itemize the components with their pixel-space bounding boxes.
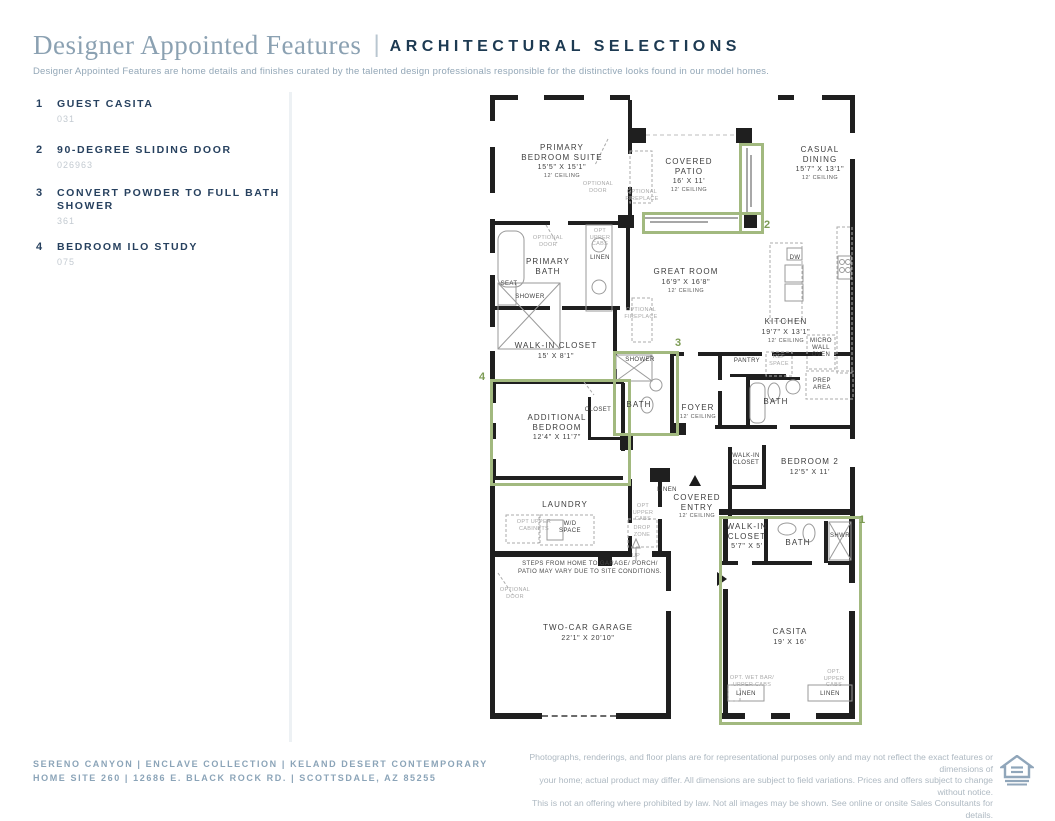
feature-item: 3CONVERT POWDER TO FULL BATH SHOWER361 [36,187,281,226]
label-shower-bath3: SHOWER [625,357,654,364]
label-ref-space: REFSPACE [769,354,789,367]
label-shower-primary: SHOWER [515,294,544,301]
page-description: Designer Appointed Features are home det… [33,66,769,77]
room-covered-patio: COVEREDPATIO16' X 11'12' CEILING [665,157,712,194]
feature-code: 361 [57,216,281,226]
room-casita: CASITA19' X 16' [773,627,808,647]
label-optional-fireplace-gr: OPTIONALFIREPLACE [624,307,657,320]
label-prep-area: PREPAREA [813,378,831,392]
room-covered-entry: COVEREDENTRY12' CEILING [673,493,720,520]
label-pantry: PANTRY [734,358,760,365]
feature-box-2-vertical [739,143,764,234]
label-opt-upper-cabinets: OPT UPPERCABINETS [517,519,551,532]
room-casual-dining: CASUALDINING15'7" X 13'1"12' CEILING [796,145,845,182]
feature-code: 031 [57,114,154,124]
label-seat: SEAT [501,281,518,288]
title-separator: | [373,31,379,58]
footer-left: SERENO CANYON | ENCLAVE COLLECTION | KEL… [33,757,488,785]
room-garage: TWO-CAR GARAGE22'1" X 20'10" [543,623,633,643]
label-linen-casita-1: LINEN [736,691,756,698]
feature-title: GUEST CASITA [57,98,154,111]
room-bedroom-2: BEDROOM 212'5" X 11' [781,457,839,477]
feature-title: CONVERT POWDER TO FULL BATH SHOWER [57,187,281,213]
room-casita-bath: BATH [785,538,810,548]
label-linen-entry: LINEN [657,487,677,494]
room-bedroom2-closet: WALK-INCLOSET [732,453,760,467]
room-bath-2: BATH [763,397,788,407]
disclaimer-line: This is not an offering where prohibited… [523,798,993,821]
brochure-page: { "header": { "title": "Designer Appoint… [0,0,1055,815]
disclaimer-line: Photographs, renderings, and floor plans… [523,752,993,775]
room-additional-bedroom: ADDITIONALBEDROOM12'4" X 11'7" [527,413,586,442]
label-optional-door-patio: OPTIONALDOOR [583,181,613,194]
feature-code: 075 [57,257,198,267]
feature-number: 4 [36,241,57,267]
label-optional-fireplace-patio: OPTIONALFIREPLACE [625,189,658,202]
room-primary-bath: PRIMARYBATH [526,257,570,276]
feature-code: 026963 [57,160,232,170]
room-bath-3: BATH [626,400,651,410]
label-drop-zone: DROPZONE [633,525,650,538]
label-opt-upper-cabs-entry: OPTUPPERCABS [633,503,653,523]
floor-plan: 2341 PRIMARYBEDROOM SUITE15'5" X 15'1"12… [490,95,860,730]
feature-title: BEDROOM ILO STUDY [57,241,198,254]
label-linen-bath: LINEN [590,255,610,262]
feature-marker-number: 3 [675,337,681,349]
label-shwr-casita: SHWR [830,533,850,540]
footer-community: SERENO CANYON | ENCLAVE COLLECTION | KEL… [33,757,488,771]
feature-number: 1 [36,98,57,124]
label-optional-door-bath: OPTIONALDOOR [533,235,563,248]
feature-marker-number: 4 [479,371,485,383]
label-optional-door-garage: OPTIONALDOOR [500,587,530,600]
label-opt-upper-cabs-casita: OPT.UPPERCABS [824,669,844,689]
page-subtitle-heading: ARCHITECTURAL SELECTIONS [390,38,741,55]
room-casita-closet: WALK-INCLOSET5'7" X 5' [727,522,768,551]
room-primary-bedroom-suite: PRIMARYBEDROOM SUITE15'5" X 15'1"12' CEI… [521,143,602,180]
room-great-room: GREAT ROOM16'9" X 16'8"12' CEILING [654,267,719,295]
footer-address: HOME SITE 260 | 12686 E. BLACK ROCK RD. … [33,771,488,785]
label-opt-wet-bar: OPT. WET BAR/UPPER CABS [730,675,774,688]
room-kitchen: KITCHEN19'7" X 13'1"12' CEILING [762,317,811,345]
page-title: Designer Appointed Features [33,30,361,60]
equal-housing-opportunity-icon [1000,755,1034,789]
footer-disclaimer: Photographs, renderings, and floor plans… [523,752,993,821]
label-up: UP [632,553,640,560]
room-walk-in-closet: WALK-IN CLOSET15' X 8'1" [515,341,598,361]
room-laundry: LAUNDRY [542,500,588,510]
feature-marker-number: 2 [764,219,770,231]
room-foyer: FOYER12' CEILING [680,403,716,421]
disclaimer-line: your home; actual product may differ. Al… [523,775,993,798]
feature-item: 4BEDROOM ILO STUDY075 [36,241,198,267]
feature-number: 3 [36,187,57,226]
feature-marker-number: 1 [859,514,865,526]
vertical-divider [289,92,292,742]
feature-item: 290-DEGREE SLIDING DOOR026963 [36,144,232,170]
label-micro-wall-oven: MICROWALLOVEN [810,338,832,359]
feature-title: 90-DEGREE SLIDING DOOR [57,144,232,157]
label-steps-note: STEPS FROM HOME TO GARAGE/ PORCH/PATIO M… [518,560,662,576]
page-header: Designer Appointed Features|ARCHITECTURA… [33,30,741,61]
feature-number: 2 [36,144,57,170]
label-opt-upper-cabs-bath: OPTUPPERCABS [590,228,610,248]
feature-item: 1GUEST CASITA031 [36,98,154,124]
label-wd-space: W/DSPACE [559,521,581,535]
label-linen-casita-2: LINEN [820,691,840,698]
label-closet: CLOSET [585,407,611,414]
label-dw: DW [790,255,801,262]
